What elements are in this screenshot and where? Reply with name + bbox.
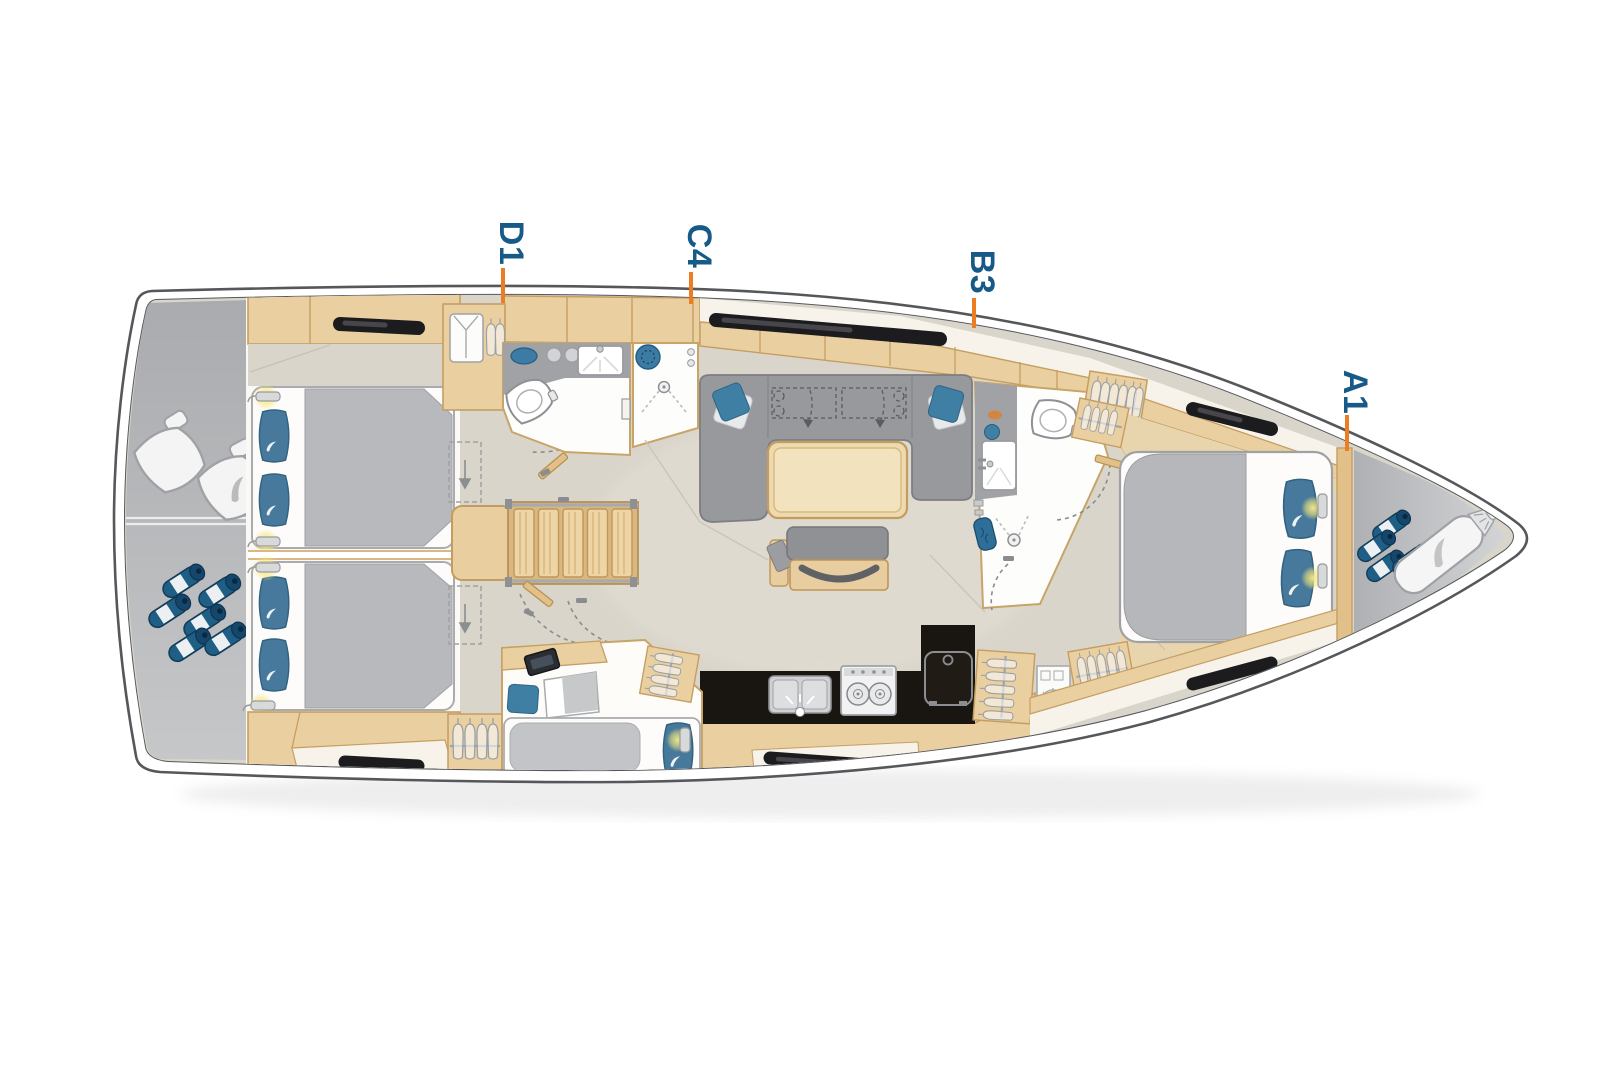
companionway-stairs-icon xyxy=(452,499,638,587)
faucet-dot xyxy=(547,348,561,362)
aft-cabin1-blanket xyxy=(305,389,452,546)
aft-cabin1-floor xyxy=(248,344,460,386)
pillow xyxy=(259,639,288,691)
decor-bowl xyxy=(511,348,537,364)
faucet-dot xyxy=(565,348,579,362)
yacht-floor-plan: D1 C4 B3 A1 xyxy=(0,0,1620,1080)
floor-plan-canvas: D1 C4 B3 A1 xyxy=(0,0,1620,1080)
pillow xyxy=(259,577,288,629)
sink-icon xyxy=(978,441,1016,490)
cabin-label-c4: C4 xyxy=(680,224,718,268)
cabin-divider-wall xyxy=(248,550,460,560)
shower-door xyxy=(622,399,630,419)
hull-window-icon xyxy=(345,762,418,766)
owner-bed xyxy=(1120,452,1332,642)
reading-light-icon xyxy=(1318,494,1327,518)
stove-icon xyxy=(841,666,896,715)
decor-flower xyxy=(985,425,1000,440)
reading-light-icon xyxy=(680,728,690,752)
shower-control xyxy=(688,360,695,367)
shower-stall xyxy=(622,343,698,447)
aft-hanging-locker xyxy=(448,714,502,774)
wall-control xyxy=(975,510,983,515)
bow-bulkhead xyxy=(1337,448,1352,642)
galley-sink-icon xyxy=(769,676,831,717)
reading-light-icon xyxy=(1318,564,1327,588)
aft-cabin2-blanket xyxy=(305,564,452,708)
pillow xyxy=(259,474,288,526)
pillow xyxy=(259,410,288,462)
cabin-label-b3: B3 xyxy=(963,250,1001,294)
interior xyxy=(114,280,1534,790)
mid-cabin xyxy=(502,640,702,778)
owner-blanket xyxy=(1124,454,1246,640)
galley-upper-cabinets xyxy=(503,296,700,344)
transom-platform xyxy=(126,300,250,760)
door-handle xyxy=(1003,556,1014,561)
sink-icon xyxy=(578,346,623,375)
wardrobe xyxy=(443,304,505,410)
salon-table xyxy=(768,442,907,518)
mid-cabin-locker xyxy=(640,646,700,702)
galley-hanging-locker xyxy=(973,650,1035,724)
wall-control xyxy=(974,500,983,506)
soap-dish xyxy=(988,411,1002,420)
shower-control xyxy=(688,349,695,356)
cabin-label-d1: D1 xyxy=(492,221,530,265)
shower-grate xyxy=(636,345,660,369)
single-berth xyxy=(504,718,700,778)
pillow xyxy=(507,684,539,714)
fridge-icon xyxy=(925,652,972,706)
cabin-label-a1: A1 xyxy=(1336,370,1374,414)
